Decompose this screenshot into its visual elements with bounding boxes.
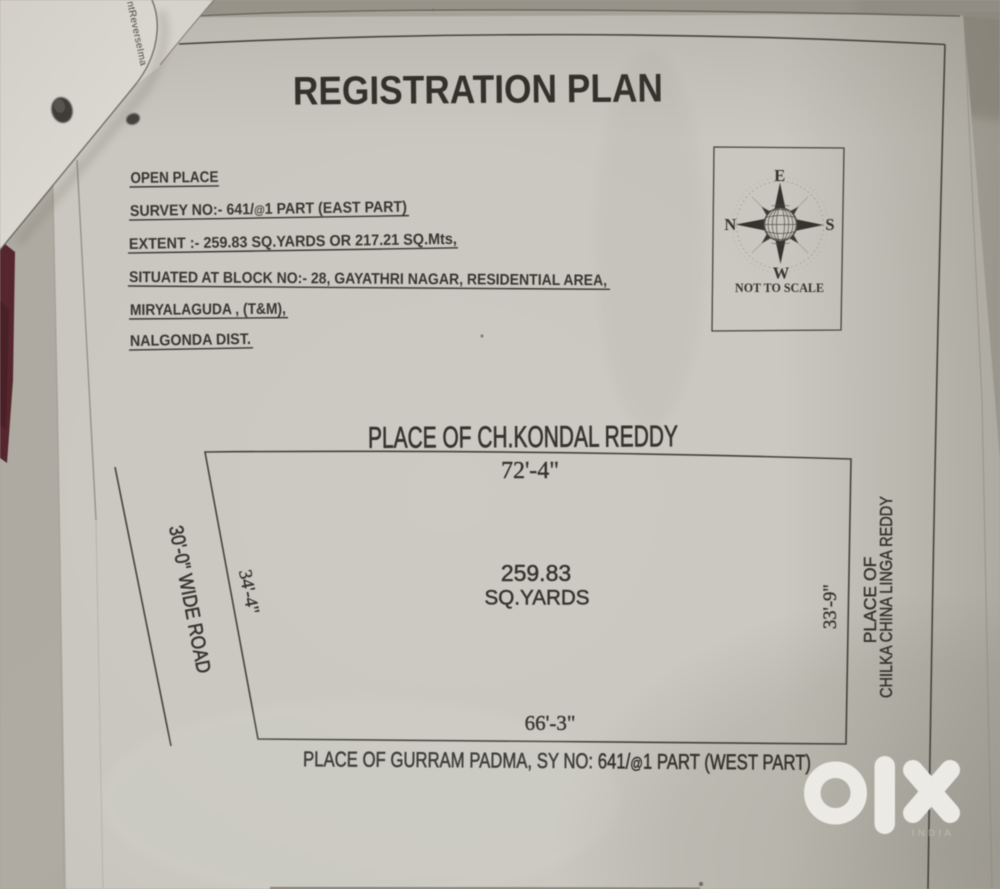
svg-text:72'-4": 72'-4" (501, 458, 559, 484)
svg-text:N: N (724, 215, 736, 234)
svg-text:NOT TO SCALE: NOT TO SCALE (735, 280, 824, 295)
svg-text:OPEN PLACE: OPEN PLACE (130, 169, 218, 187)
svg-text:259.83: 259.83 (501, 560, 571, 586)
svg-text:MIRYALAGUDA , (T&M),: MIRYALAGUDA , (T&M), (130, 301, 286, 319)
svg-text:SQ.YARDS: SQ.YARDS (485, 586, 590, 610)
svg-text:E: E (774, 166, 785, 185)
svg-text:INDIA: INDIA (912, 828, 954, 839)
svg-text:33'-9": 33'-9" (821, 584, 841, 629)
svg-text:S: S (825, 215, 834, 234)
svg-text:PLACE OF CH.KONDAL REDDY: PLACE OF CH.KONDAL REDDY (368, 420, 678, 455)
svg-text:NALGONDA DIST.: NALGONDA DIST. (130, 331, 251, 350)
svg-text:REGISTRATION PLAN: REGISTRATION PLAN (293, 66, 663, 113)
svg-text:CHILKA CHINA LINGA REDDY: CHILKA CHINA LINGA REDDY (876, 496, 896, 698)
